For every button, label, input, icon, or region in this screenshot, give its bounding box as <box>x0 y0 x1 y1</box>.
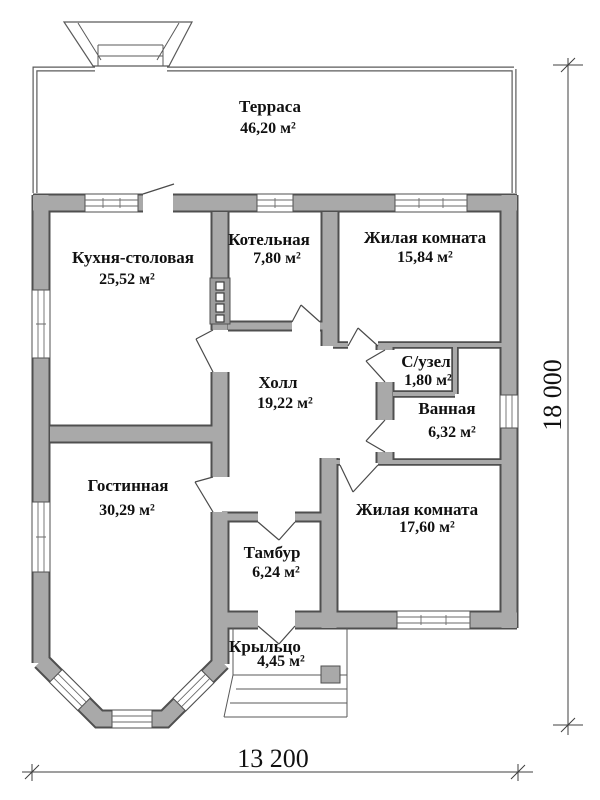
room-label-boiler: Котельная <box>228 230 310 249</box>
door-livingroom <box>195 477 213 512</box>
window-bedroom1-top <box>395 194 467 212</box>
window-boiler-top <box>257 194 293 212</box>
door-wc <box>366 350 385 382</box>
room-labels: Терраса 46,20 м² Кухня-столовая 25,52 м²… <box>72 97 487 670</box>
room-area-tambour: 6,24 м² <box>252 564 300 581</box>
room-label-bath: Ванная <box>418 399 475 418</box>
chimney-vent-block <box>210 278 230 324</box>
floor-plan-page: 13 200 18 000 Терраса 46,20 м² Кухня-сто… <box>0 0 600 800</box>
window-bedroom2-bottom <box>397 611 470 629</box>
dimension-label-width: 13 200 <box>237 744 309 773</box>
steps-outer <box>64 22 192 66</box>
window-living-left <box>32 502 50 572</box>
room-area-hall: 19,22 м² <box>257 395 313 412</box>
door-bath <box>366 420 385 452</box>
room-label-terrace: Терраса <box>239 97 301 116</box>
window-bay-bottom <box>112 710 152 728</box>
dimensions: 13 200 18 000 <box>22 58 583 781</box>
window-kitchen-top <box>85 194 138 212</box>
room-area-bedroom2: 17,60 м² <box>399 519 455 536</box>
room-area-kitchen: 25,52 м² <box>99 271 155 288</box>
medium-walls-fill <box>222 326 334 517</box>
door-bedroom2 <box>340 465 378 492</box>
floor-plan-drawing: 13 200 18 000 Терраса 46,20 м² Кухня-сто… <box>0 0 600 800</box>
room-label-kitchen: Кухня-столовая <box>72 248 194 267</box>
room-label-tambour: Тамбур <box>244 543 301 562</box>
medium-walls-outline <box>222 326 334 517</box>
room-area-livingroom: 30,29 м² <box>99 502 155 519</box>
room-label-bedroom1: Жилая комната <box>364 228 487 247</box>
room-label-wc: С/узел <box>401 352 451 371</box>
door-kitchen <box>196 330 213 372</box>
room-area-bedroom1: 15,84 м² <box>397 249 453 266</box>
room-area-wc: 1,80 м² <box>404 372 452 389</box>
room-label-livingroom: Гостинная <box>88 476 169 495</box>
window-bay-left <box>49 669 90 710</box>
door-boiler <box>292 305 320 322</box>
room-area-bath: 6,32 м² <box>428 424 476 441</box>
dimension-label-height: 18 000 <box>538 359 567 431</box>
door-tambour <box>258 522 295 540</box>
window-bay-right <box>173 670 214 711</box>
room-area-porch: 4,45 м² <box>257 653 305 670</box>
window-bath-right <box>500 395 518 428</box>
room-area-boiler: 7,80 м² <box>253 250 301 267</box>
door-bedroom1 <box>348 328 378 346</box>
entrance-steps <box>64 22 192 66</box>
room-area-terrace: 46,20 м² <box>240 120 296 137</box>
porch-post <box>321 666 340 683</box>
door-terrace <box>143 184 174 194</box>
room-label-hall: Холл <box>258 373 298 392</box>
window-kitchen-left <box>32 290 50 358</box>
room-label-bedroom2: Жилая комната <box>356 500 479 519</box>
